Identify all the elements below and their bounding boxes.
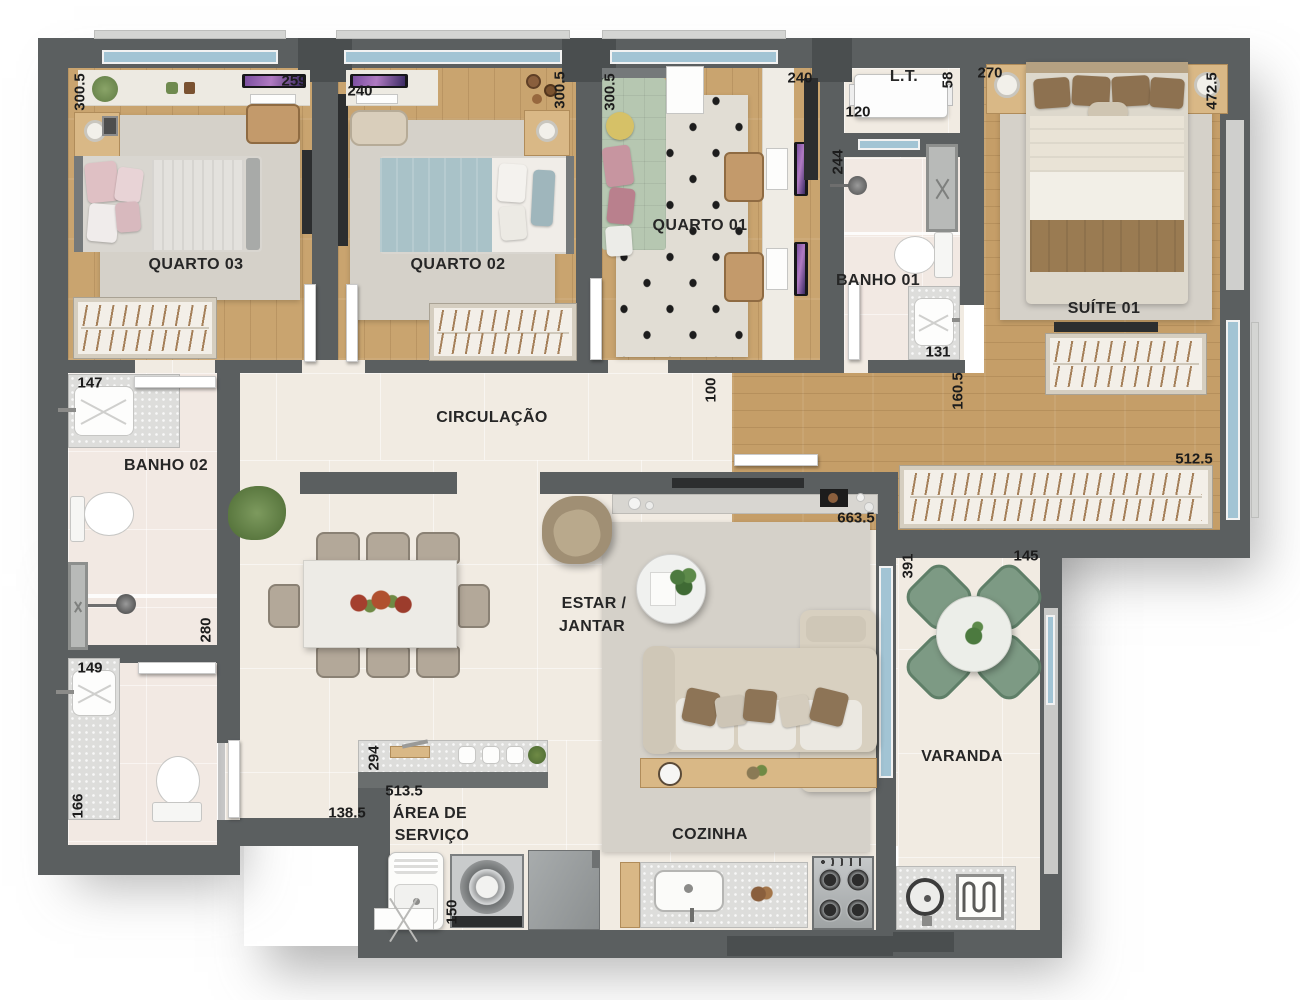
- sofa-chaise-pillow: [806, 616, 866, 642]
- kitchen-faucet: [690, 908, 694, 922]
- service-washer-panel: [452, 916, 522, 927]
- q1-monitor2: [794, 242, 808, 296]
- q1-keyboard1: [766, 148, 788, 190]
- banho01-shaft: [926, 144, 958, 232]
- label-servico-line1: ÁREA DE: [393, 805, 467, 823]
- wall-band-seg1: [68, 360, 135, 373]
- hangers: [437, 310, 569, 330]
- q1-desk-strip: [762, 68, 794, 360]
- dim-suite-head: 270: [977, 65, 1002, 82]
- hangers: [437, 333, 569, 353]
- shelf-deco-bowl: [628, 497, 641, 510]
- sofa-pillow-brown: [742, 688, 777, 723]
- dim-banho01-width: 131: [925, 344, 950, 361]
- varanda-right-glass: [1046, 615, 1055, 705]
- sofa-pillow-light: [778, 694, 813, 729]
- dim-suite-closet: 512.5: [1175, 451, 1213, 468]
- q3-photo-frame: [102, 116, 118, 136]
- floor-plan: QUARTO 03 QUARTO 02 QUARTO 01 L.T. BANHO…: [0, 0, 1300, 1000]
- hangers: [1053, 341, 1199, 363]
- dining-chair: [416, 646, 460, 678]
- banho02-door: [134, 376, 216, 388]
- dim-estar-width: 663.5: [837, 510, 875, 527]
- dim-servico-island: 294: [366, 745, 383, 770]
- stove-burner: [818, 868, 842, 892]
- wall-outer-left: [38, 68, 68, 875]
- label-banho01: BANHO 01: [836, 272, 920, 290]
- living-tv: [672, 478, 804, 488]
- q2-pillow-blue: [531, 169, 556, 226]
- lavabo-toilet-tank: [152, 802, 202, 822]
- lavabo-toilet-bowl: [156, 756, 200, 806]
- wall-lavabo-bottom: [38, 845, 240, 875]
- banho01-shower-head: [848, 176, 867, 195]
- shelf-speaker-cone: [828, 493, 838, 503]
- dim-quarto02-side: 300.5: [552, 71, 569, 109]
- q3-blanket: [152, 160, 244, 250]
- label-quarto02: QUARTO 02: [411, 256, 506, 274]
- lavabo-door: [138, 662, 216, 674]
- dim-suite-hall: 160.5: [950, 372, 967, 410]
- q1-chair2: [724, 252, 764, 302]
- dining-chair: [366, 646, 410, 678]
- suite-pillow: [1149, 77, 1185, 109]
- varanda-glass-door: [879, 566, 893, 778]
- dim-quarto01-side: 300.5: [602, 73, 619, 111]
- hangers: [81, 305, 210, 327]
- service-fridge: [528, 850, 600, 930]
- q1-keyboard2: [766, 248, 788, 290]
- banho01-door: [848, 282, 860, 360]
- hangers: [81, 330, 210, 352]
- dim-servico-bottom: 150: [444, 899, 461, 924]
- window-suite: [1226, 320, 1240, 520]
- suite-right-ledge: [1226, 120, 1244, 290]
- wall-pillar-column: [812, 38, 852, 82]
- q2-pillow-white: [497, 163, 528, 203]
- q1-pillow-yellow: [606, 112, 634, 140]
- q1-wall-shelf: [804, 78, 818, 180]
- varanda-grill-handle: [922, 916, 932, 926]
- label-servico-line2: SERVIÇO: [395, 827, 470, 845]
- dim-lavabo-side: 166: [70, 793, 87, 818]
- wall-connector: [876, 472, 898, 530]
- window-quarto01: [610, 50, 778, 64]
- q2-lamp: [536, 120, 558, 142]
- wall-band-seg4: [668, 360, 820, 373]
- q1-chair1: [724, 152, 764, 202]
- dining-chair: [268, 584, 300, 628]
- console-plate: [658, 762, 682, 786]
- label-cozinha: COZINHA: [672, 826, 748, 844]
- banho02-shower-glass: [68, 594, 217, 598]
- q3-desk-chair: [246, 104, 300, 144]
- q1-door: [590, 278, 602, 360]
- lavabo-basin: [72, 670, 116, 716]
- hangers: [910, 499, 1202, 522]
- sill-quarto01: [602, 30, 786, 39]
- wall-bath-column-right: [217, 373, 240, 743]
- label-suite01: SUÍTE 01: [1068, 300, 1141, 318]
- q3-keyboard: [250, 94, 296, 104]
- banho01-toilet-bowl: [894, 236, 936, 274]
- q3-pillow-rose2: [115, 201, 142, 233]
- wall-band-seg2: [215, 360, 302, 373]
- q3-deco-box: [184, 82, 195, 94]
- island-stool: [458, 746, 476, 764]
- q1-pillow-pink: [601, 144, 634, 188]
- hangers: [910, 473, 1202, 496]
- shelf-deco: [856, 493, 865, 502]
- label-circulacao: CIRCULAÇÃO: [436, 409, 548, 427]
- q3-pillow-rose: [114, 166, 144, 203]
- kitchen-sink-drain: [684, 884, 693, 893]
- label-quarto01: QUARTO 01: [653, 217, 748, 235]
- service-fridge-handle: [592, 850, 600, 868]
- q2-wardrobe: [430, 304, 576, 360]
- banho02-toilet-bowl: [84, 492, 134, 536]
- dim-quarto01-top: 240: [787, 70, 812, 87]
- wall-column-left: [820, 38, 844, 373]
- label-varanda: VARANDA: [921, 748, 1003, 766]
- dim-quarto03-side: 300.5: [72, 73, 89, 111]
- dim-varanda-depth: 391: [900, 553, 917, 578]
- label-estar-line1: ESTAR /: [562, 595, 627, 613]
- dim-quarto03-desk: 259: [281, 73, 306, 90]
- suite-closet-2: [900, 466, 1212, 528]
- banho02-faucet: [58, 408, 76, 412]
- banho02-basin: [74, 386, 134, 436]
- service-vent-box: [374, 908, 434, 930]
- dim-servico-left: 138.5: [328, 805, 366, 822]
- varanda-grill-knob: [924, 895, 931, 902]
- grill-coil-icon: [960, 878, 1000, 916]
- island-cutting-board: [390, 746, 430, 758]
- varanda-table-plant: [962, 618, 988, 648]
- label-banho02: BANHO 02: [124, 457, 208, 475]
- banho01-window: [858, 139, 920, 150]
- suite-sheet-white: [1030, 172, 1184, 220]
- kitchen-cabinet-wood: [620, 862, 640, 928]
- banho02-shower-head: [116, 594, 136, 614]
- stove-knobs: [818, 858, 868, 866]
- dim-banho02-top: 147: [77, 375, 102, 392]
- dining-chair: [316, 646, 360, 678]
- hangers: [1053, 366, 1199, 388]
- q2-deco-bowl3: [532, 94, 542, 104]
- label-estar-line2: JANTAR: [559, 618, 625, 636]
- suite-tv: [1054, 322, 1158, 332]
- q3-bed-footboard: [246, 158, 260, 250]
- q2-bed-headboard: [566, 156, 574, 254]
- q1-pillow-pink2: [606, 187, 636, 226]
- kitchen-deco-food: [748, 884, 774, 904]
- q1-pillow-white: [605, 225, 633, 257]
- dining-chair: [458, 584, 490, 628]
- shelf-deco-bowl2: [645, 501, 654, 510]
- sill-quarto02: [336, 30, 570, 39]
- q3-plant: [92, 76, 118, 102]
- coffee-table-plant: [668, 566, 700, 598]
- q2-deco-bowl: [526, 74, 541, 89]
- console-plant: [742, 760, 770, 786]
- dim-suite-side: 472.5: [1204, 72, 1221, 110]
- q3-door: [304, 284, 316, 362]
- q3-deco-plant: [166, 82, 178, 94]
- lavabo-faucet: [56, 690, 74, 694]
- dim-varanda-width: 145: [1013, 548, 1038, 565]
- wall-bath-column-right2: [217, 820, 240, 846]
- q2-armchair: [350, 110, 408, 146]
- island-plant: [528, 746, 546, 764]
- window-quarto02: [344, 50, 562, 64]
- banho01-basin: [914, 298, 954, 346]
- suite-blanket: [1030, 220, 1184, 272]
- wall-living-bottom-left: [240, 818, 360, 846]
- dim-banho02-depth: 280: [198, 617, 215, 642]
- window-quarto03: [102, 50, 278, 64]
- suite-pillow: [1033, 77, 1071, 109]
- sofa-armrest: [643, 646, 675, 754]
- label-quarto03: QUARTO 03: [149, 256, 244, 274]
- suite-sheet: [1030, 116, 1184, 172]
- wall-kitchen-bottom-block: [727, 936, 893, 956]
- stove-burner: [818, 898, 842, 922]
- wall-band-seg5: [868, 360, 965, 373]
- dim-circulacao-opening: 100: [703, 377, 720, 402]
- service-tank-vents: [394, 858, 438, 874]
- dim-banho01-depth: 244: [830, 149, 847, 174]
- dim-lavabo-top: 149: [77, 660, 102, 677]
- suite-closet-1: [1046, 334, 1206, 394]
- dim-lt-width: 120: [845, 104, 870, 121]
- stove-burner: [846, 898, 870, 922]
- lavabo-door-living: [228, 740, 240, 818]
- dining-centerpiece: [344, 588, 418, 618]
- q3-bed-headboard: [74, 156, 83, 252]
- island-stool: [506, 746, 524, 764]
- sill-suite: [1251, 322, 1259, 518]
- label-lt: L.T.: [890, 68, 918, 86]
- dim-lt-depth: 58: [940, 72, 957, 89]
- dim-servico-top: 513.5: [385, 783, 423, 800]
- sill-quarto03: [94, 30, 286, 39]
- banho01-toilet-tank: [934, 232, 953, 278]
- q2-door: [346, 284, 358, 362]
- banho01-faucet: [952, 318, 960, 322]
- q3-wardrobe: [74, 298, 216, 358]
- island-stool: [482, 746, 500, 764]
- suite-bed-headboard: [1026, 62, 1188, 73]
- living-plant: [228, 486, 286, 540]
- stove-burner: [846, 868, 870, 892]
- q2-duvet-blue: [380, 158, 492, 252]
- service-washer-drum: [460, 860, 514, 914]
- banho02-toilet-tank: [70, 496, 85, 542]
- wall-tv-half: [300, 472, 457, 494]
- closet-panel-q3: [302, 150, 312, 234]
- closet-panel-q2: [338, 94, 348, 246]
- q1-head-cabinet: [666, 66, 704, 114]
- suite-door: [734, 454, 818, 466]
- wall-band-seg3: [365, 360, 608, 373]
- q2-pillow-white2: [499, 205, 528, 241]
- wall-suite-bottom: [876, 530, 1250, 558]
- dim-quarto02-top: 240: [347, 83, 372, 100]
- banho02-shaft: [68, 562, 88, 650]
